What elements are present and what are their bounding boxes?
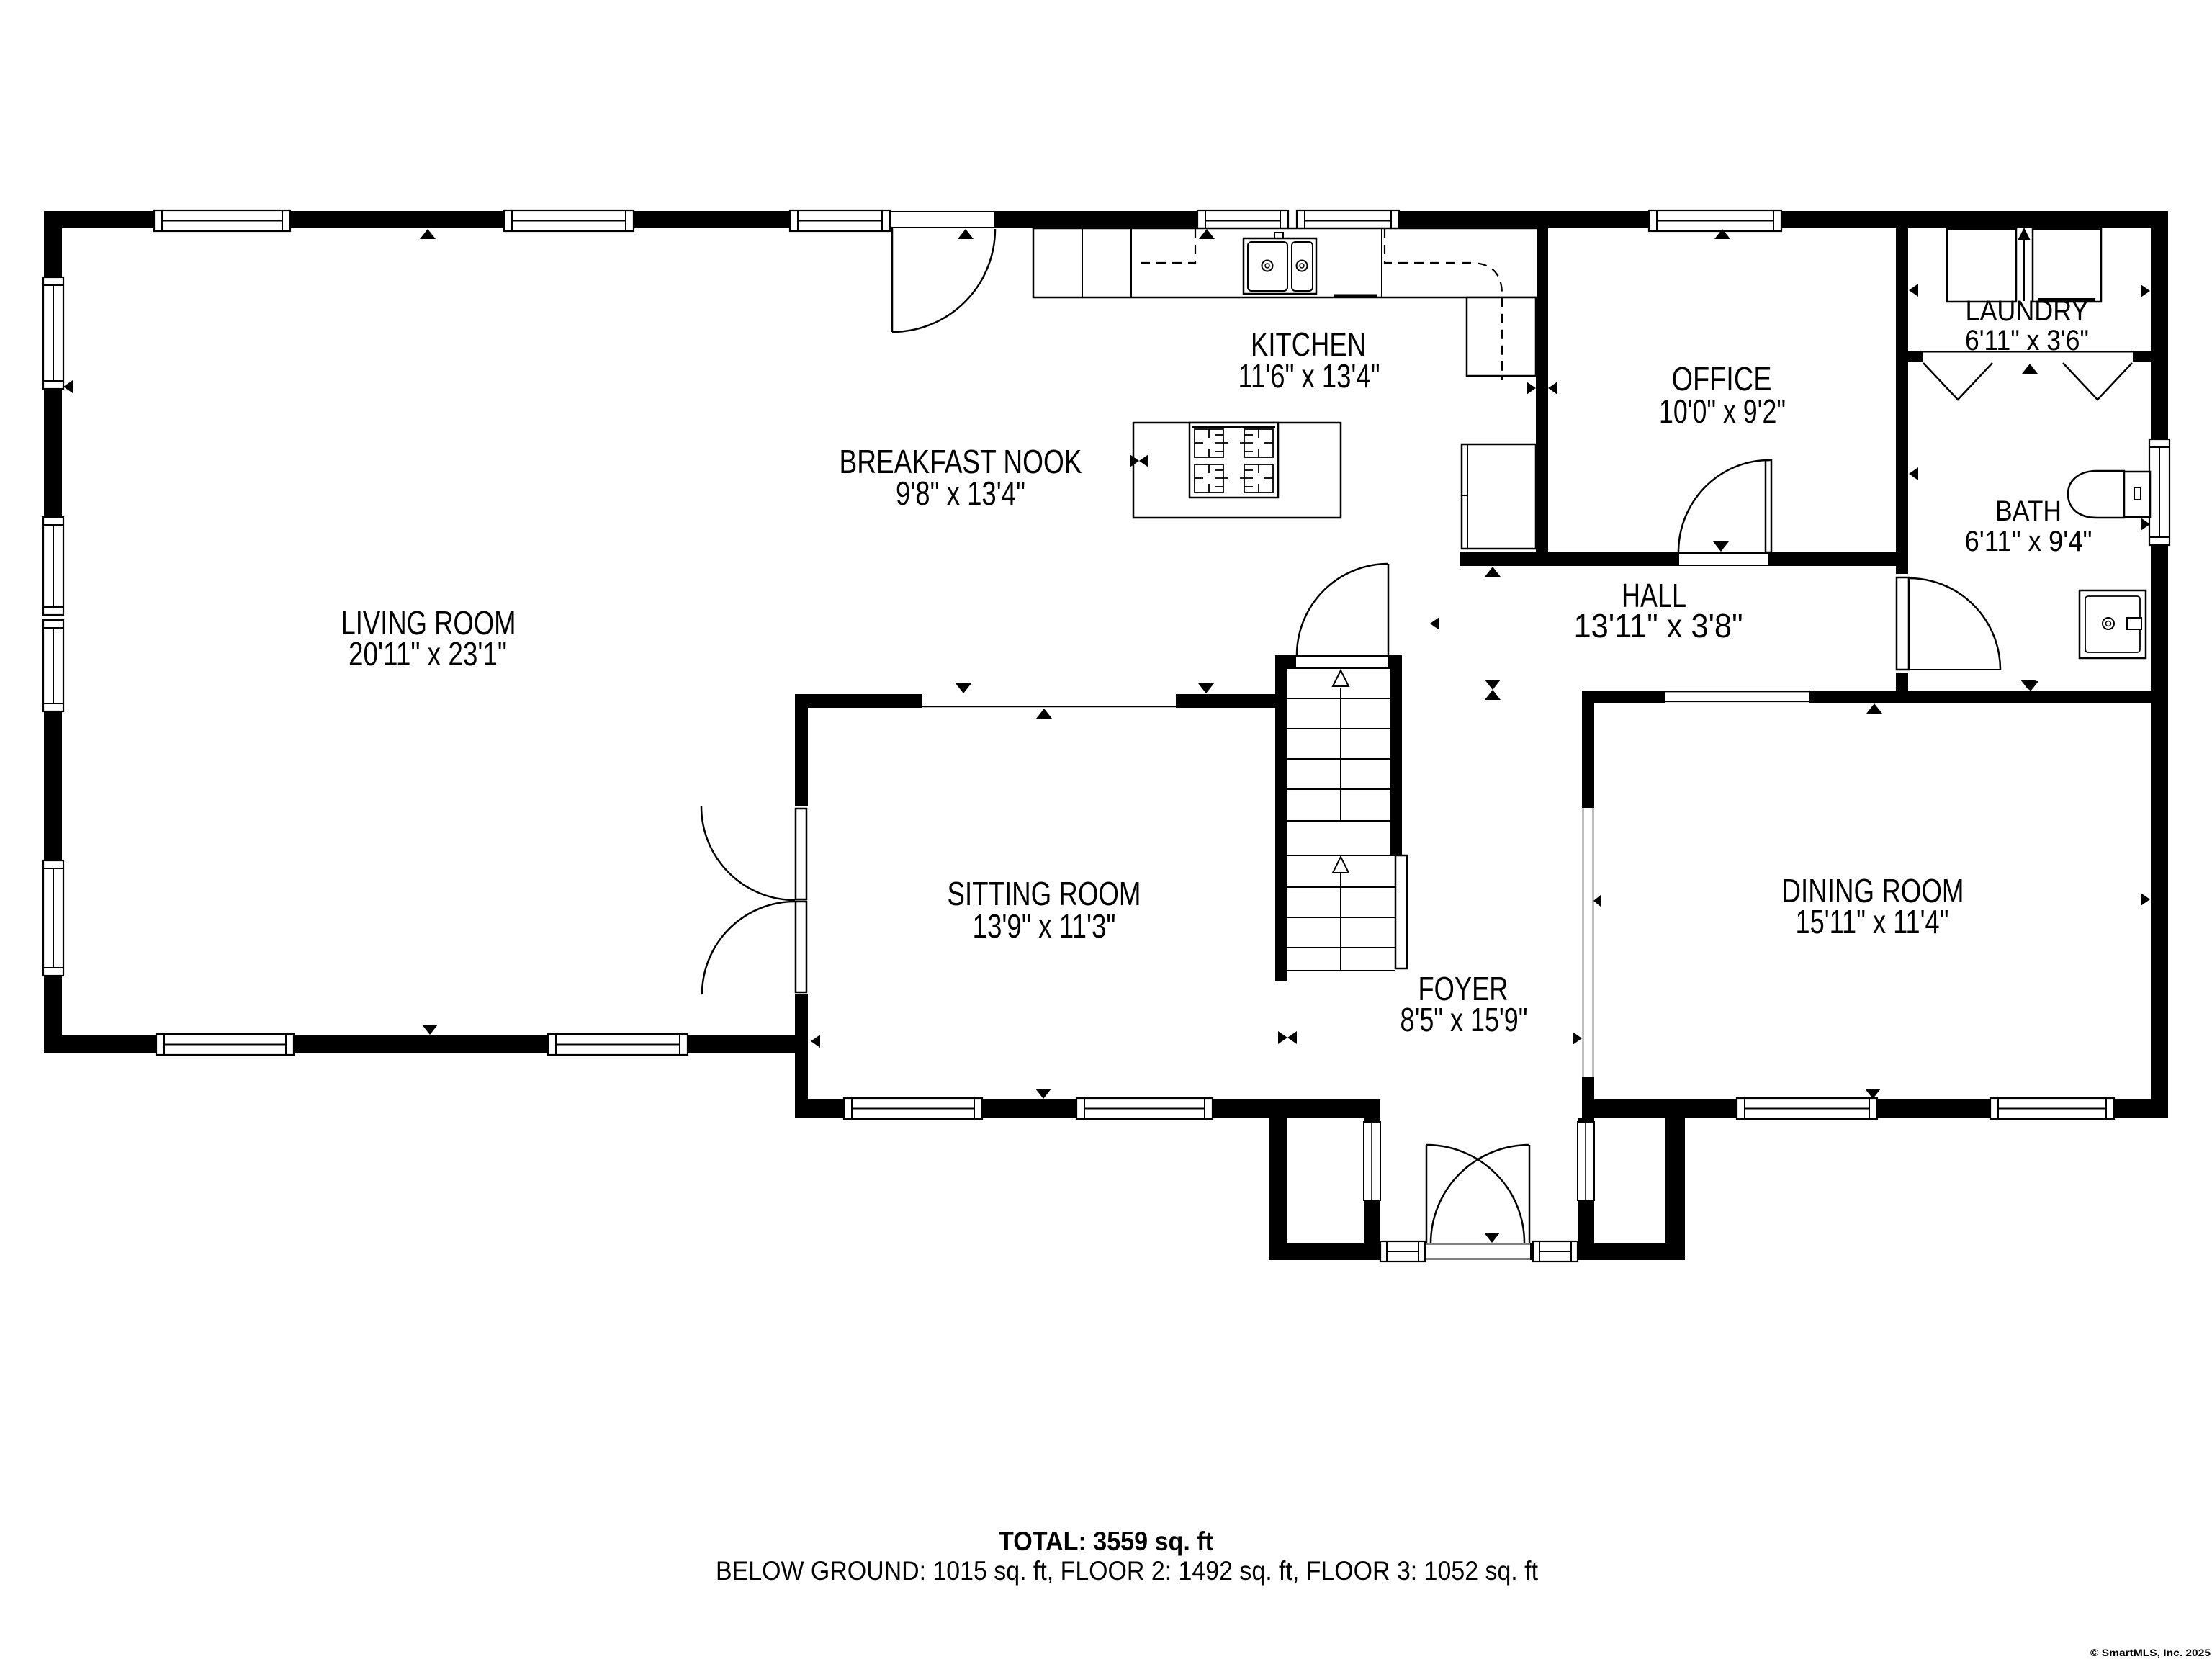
svg-text:8'5" x 15'9": 8'5" x 15'9" bbox=[1401, 1001, 1528, 1038]
svg-text:LAUNDRY: LAUNDRY bbox=[1966, 295, 2089, 327]
svg-text:20'11" x 23'1": 20'11" x 23'1" bbox=[349, 635, 507, 673]
svg-text:15'11" x 11'4": 15'11" x 11'4" bbox=[1796, 903, 1949, 940]
svg-text:11'6" x 13'4": 11'6" x 13'4" bbox=[1238, 357, 1380, 395]
svg-text:6'11" x 9'4": 6'11" x 9'4" bbox=[1965, 526, 2092, 557]
svg-text:13'11" x 3'8": 13'11" x 3'8" bbox=[1574, 607, 1743, 644]
svg-text:6'11" x 3'6": 6'11" x 3'6" bbox=[1965, 325, 2089, 356]
svg-text:13'9" x 11'3": 13'9" x 11'3" bbox=[973, 907, 1116, 945]
svg-text:© SmartMLS, Inc. 2025: © SmartMLS, Inc. 2025 bbox=[2090, 1647, 2211, 1658]
svg-text:TOTAL: 3559 sq. ft: TOTAL: 3559 sq. ft bbox=[999, 1527, 1213, 1556]
svg-text:10'0" x 9'2": 10'0" x 9'2" bbox=[1659, 392, 1786, 430]
svg-text:BELOW GROUND: 1015 sq. ft, FLO: BELOW GROUND: 1015 sq. ft, FLOOR 2: 1492… bbox=[716, 1556, 1539, 1586]
svg-text:BATH: BATH bbox=[1995, 495, 2062, 527]
svg-text:9'8" x 13'4": 9'8" x 13'4" bbox=[896, 475, 1025, 512]
